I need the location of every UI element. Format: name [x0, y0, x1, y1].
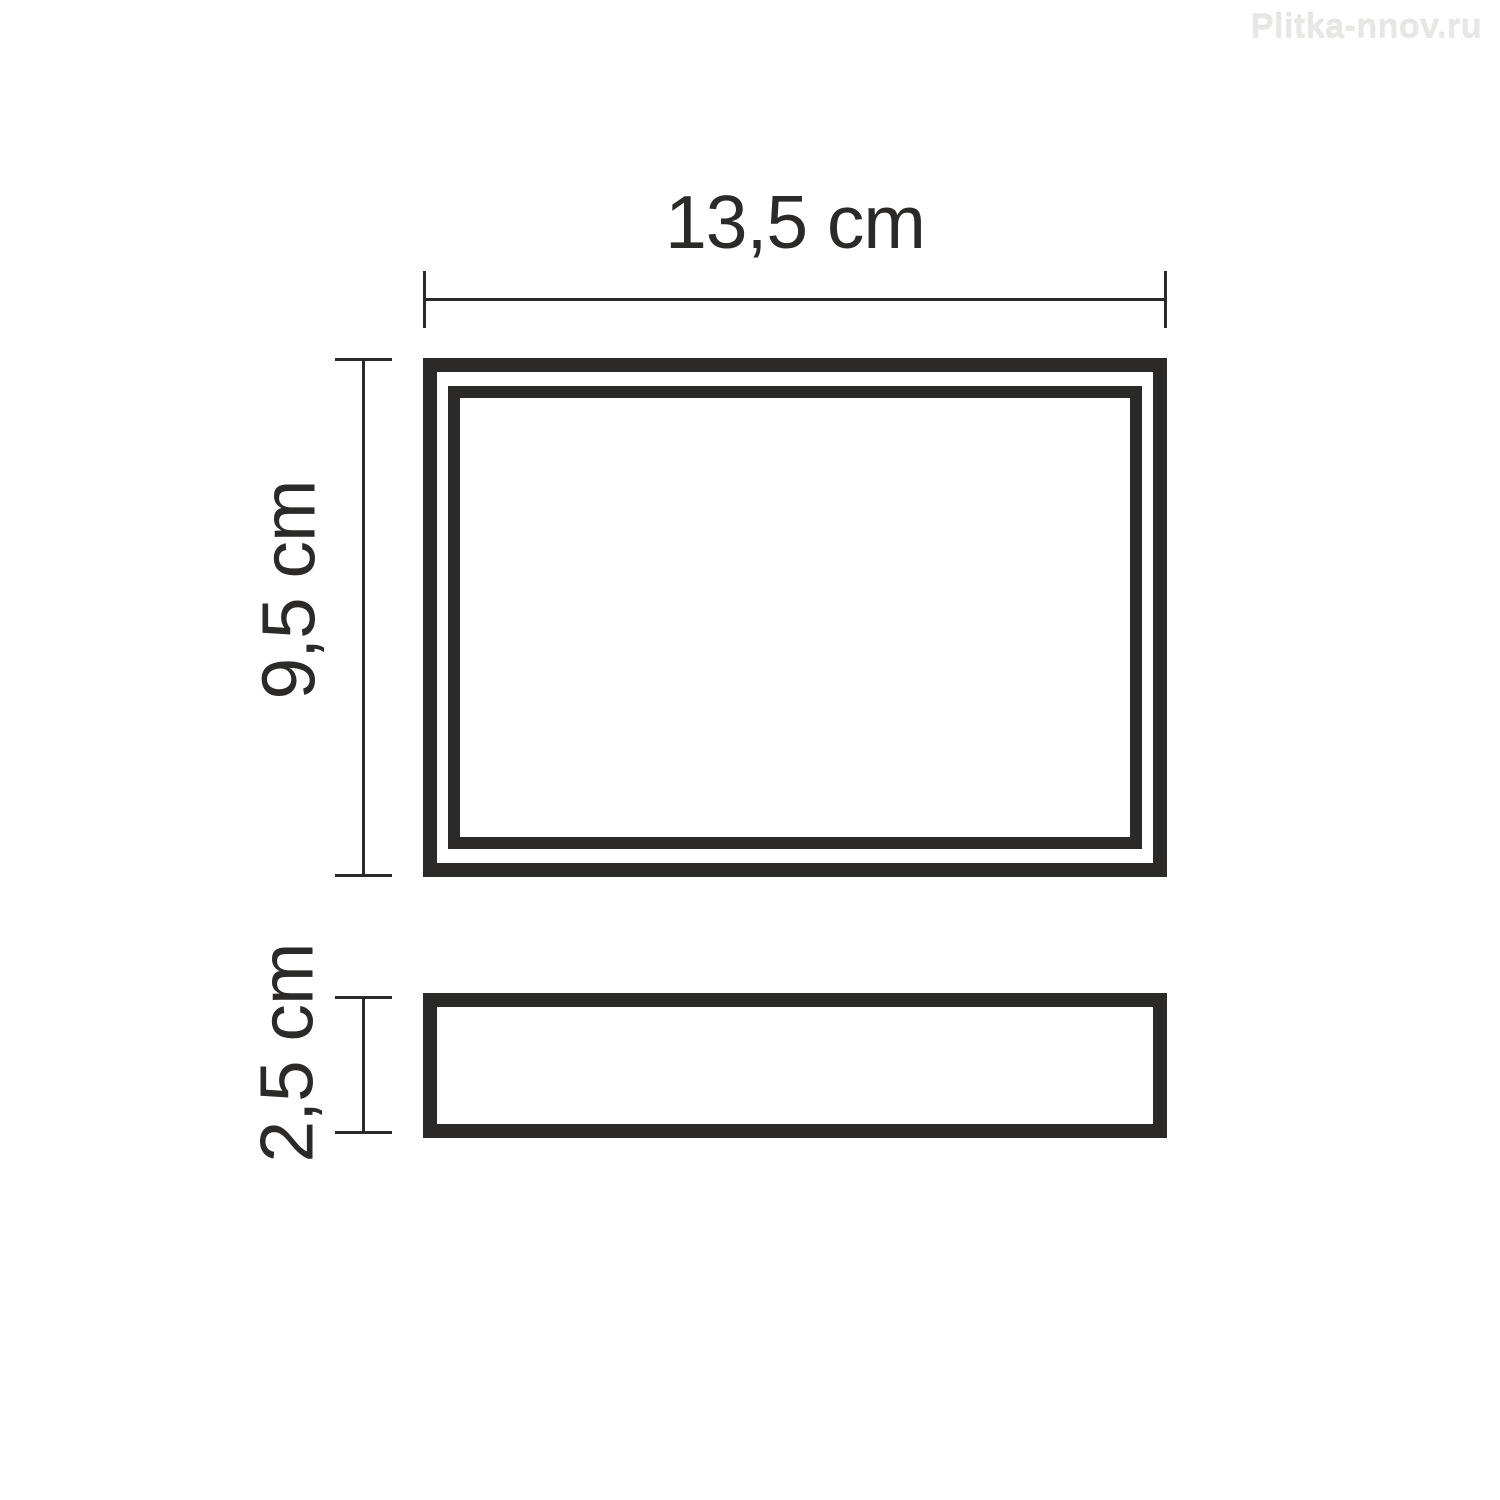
width-dimension-label: 13,5 cm	[423, 185, 1167, 260]
depth-dimension-line	[335, 996, 392, 1134]
height-dimension-line	[335, 358, 392, 877]
height-dimension-label: 9,5 cm	[252, 480, 327, 699]
dimension-line	[362, 358, 365, 877]
width-dimension-line	[423, 271, 1167, 328]
dimension-tick-bottom	[335, 874, 392, 877]
dimension-tick-right	[1164, 271, 1167, 328]
watermark-text: Plitka-nnov.ru	[1251, 8, 1482, 47]
top-view-inner-rect	[448, 386, 1142, 849]
depth-dimension-label: 2,5 cm	[250, 943, 325, 1162]
dimension-line	[362, 996, 365, 1134]
top-view-outer-rect	[423, 358, 1167, 877]
dimension-tick-bottom	[335, 1131, 392, 1134]
side-view-rect	[423, 993, 1167, 1138]
dimension-diagram: Plitka-nnov.ru 13,5 cm 9,5 cm 2,5 cm	[0, 0, 1500, 1500]
dimension-line	[423, 298, 1167, 301]
